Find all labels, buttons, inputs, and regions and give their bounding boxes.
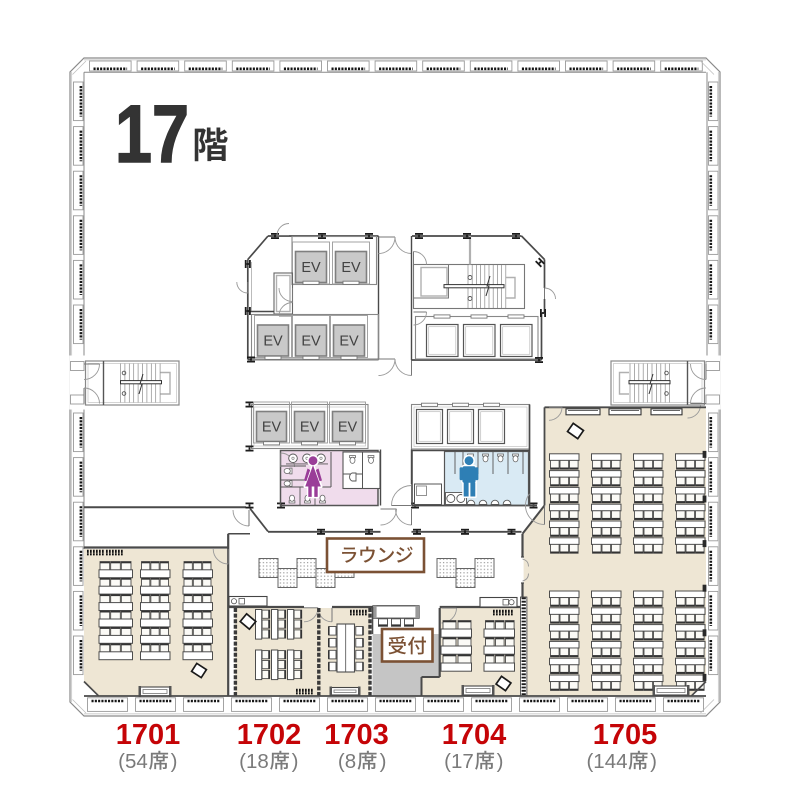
svg-text:1701: 1701 [116,719,181,751]
svg-text:(144: (144 [586,750,627,773]
svg-text:): ) [171,750,178,773]
svg-text:EV: EV [300,420,320,436]
svg-text:(17: (17 [444,750,474,773]
svg-text:EV: EV [262,420,282,436]
svg-text:EV: EV [339,334,359,350]
svg-text:): ) [497,750,504,773]
svg-text:1705: 1705 [593,719,658,751]
svg-text:(54: (54 [118,750,148,773]
svg-text:1704: 1704 [442,719,507,751]
svg-text:1703: 1703 [324,719,389,751]
svg-text:EV: EV [301,334,321,350]
svg-text:EV: EV [301,260,321,276]
svg-text:): ) [380,750,387,773]
svg-text:): ) [650,750,657,773]
svg-text:17: 17 [115,89,189,180]
svg-text:): ) [292,750,299,773]
svg-text:EV: EV [338,420,358,436]
svg-text:EV: EV [341,260,361,276]
svg-text:(8: (8 [338,750,356,773]
svg-text:1702: 1702 [237,719,302,751]
svg-text:(18: (18 [239,750,269,773]
svg-text:EV: EV [263,334,283,350]
